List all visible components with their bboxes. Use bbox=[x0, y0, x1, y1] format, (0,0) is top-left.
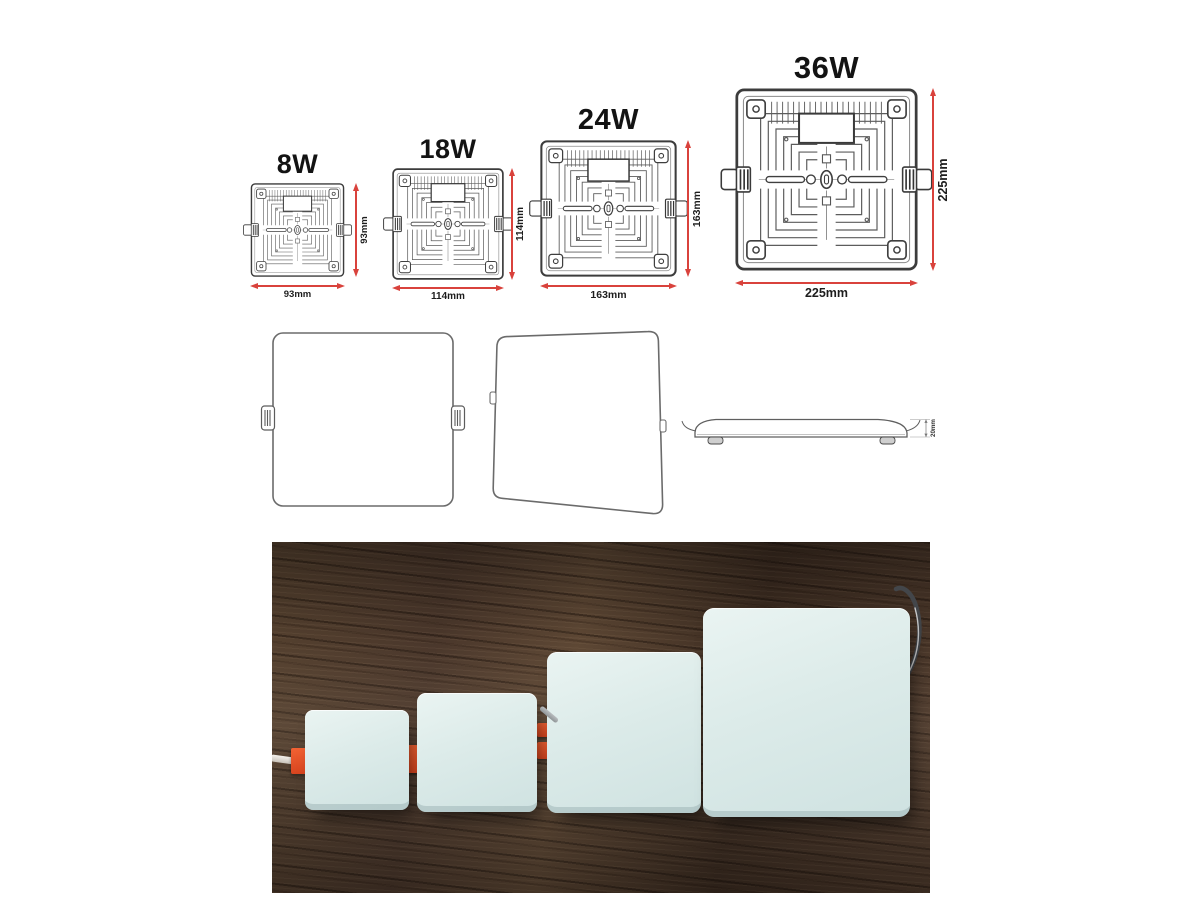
panel-back-drawing bbox=[540, 140, 677, 277]
wattage-title: 8W bbox=[220, 151, 375, 178]
thickness-dim-label: 20mm bbox=[930, 419, 937, 437]
dim-arrow bbox=[509, 272, 515, 280]
tilted-view-tab bbox=[660, 420, 666, 432]
spec-drawing-36w: 36W 225mm 225mm bbox=[735, 88, 918, 271]
wattage-title: 24W bbox=[510, 106, 707, 135]
product-spec-sheet: 8W 93mm 93mm 18W 114mm 114mm bbox=[0, 0, 1200, 900]
height-dimension-label: 163mm bbox=[691, 190, 703, 226]
front-view-drawing bbox=[256, 328, 470, 512]
wattage-title: 36W bbox=[705, 52, 948, 83]
dim-arrow bbox=[250, 283, 258, 289]
panel-back-drawing bbox=[392, 168, 504, 280]
dim-arrow bbox=[669, 283, 677, 289]
led-panel-photo-1 bbox=[305, 710, 409, 810]
wattage-title: 18W bbox=[362, 136, 534, 163]
dim-line bbox=[511, 176, 512, 272]
dim-arrow bbox=[353, 269, 359, 277]
dim-line bbox=[548, 285, 669, 286]
dim-arrow bbox=[930, 88, 936, 96]
led-panel-photo-3 bbox=[547, 652, 701, 813]
height-dimension-label: 225mm bbox=[936, 158, 950, 201]
panel-back-drawing bbox=[735, 88, 918, 271]
width-dimension-label: 225mm bbox=[735, 286, 918, 300]
dim-line bbox=[687, 148, 688, 269]
side-profile-drawing: 20mm bbox=[680, 402, 940, 454]
dim-line bbox=[932, 96, 933, 263]
height-dimension-label: 114mm bbox=[515, 207, 526, 241]
dim-arrow bbox=[509, 168, 515, 176]
product-photo bbox=[272, 542, 930, 893]
side-feet-clips bbox=[708, 437, 895, 444]
dim-arrow bbox=[685, 140, 691, 148]
led-panel-photo-2 bbox=[417, 693, 537, 812]
dim-arrow bbox=[496, 285, 504, 291]
tilted-view-drawing bbox=[482, 322, 684, 520]
dim-arrow bbox=[540, 283, 548, 289]
height-dimension-label: 93mm bbox=[359, 216, 370, 243]
width-dimension-label: 93mm bbox=[250, 289, 345, 300]
dim-line bbox=[258, 285, 337, 286]
dim-line bbox=[355, 191, 356, 269]
spec-drawing-24w: 24W 163mm 163mm bbox=[540, 140, 677, 277]
side-spring-wire bbox=[906, 420, 920, 431]
width-dimension-label: 163mm bbox=[540, 289, 677, 301]
dim-arrow bbox=[910, 280, 918, 286]
dim-line bbox=[743, 282, 910, 283]
dim-arrow bbox=[353, 183, 359, 191]
spec-drawing-8w: 8W 93mm 93mm bbox=[250, 183, 345, 277]
led-panel-photo-4 bbox=[703, 608, 910, 817]
spec-drawing-18w: 18W 114mm 114mm bbox=[392, 168, 504, 280]
panel-back-drawing bbox=[250, 183, 345, 277]
dim-arrow bbox=[685, 269, 691, 277]
dim-arrow bbox=[392, 285, 400, 291]
side-spring-wire bbox=[682, 421, 696, 431]
dim-arrow bbox=[930, 263, 936, 271]
dim-arrow bbox=[735, 280, 743, 286]
dim-arrow bbox=[337, 283, 345, 289]
tilted-view-tab bbox=[490, 392, 496, 404]
dim-line bbox=[400, 287, 496, 288]
width-dimension-label: 114mm bbox=[392, 291, 504, 302]
